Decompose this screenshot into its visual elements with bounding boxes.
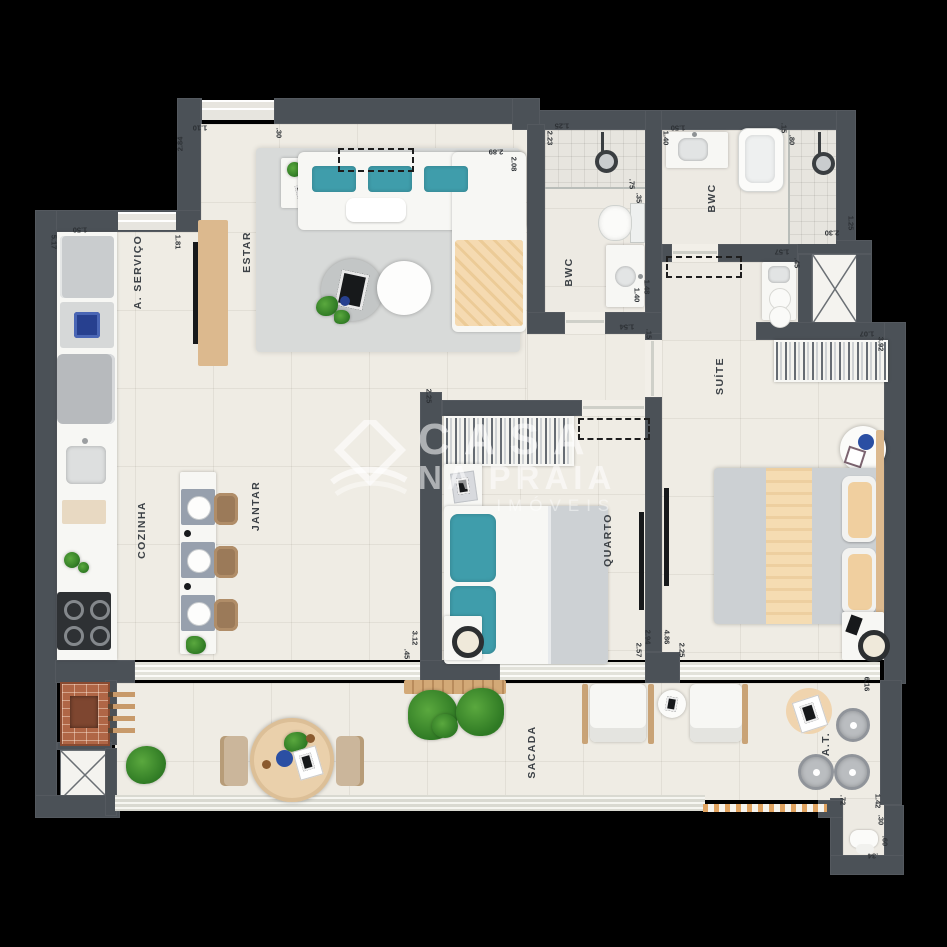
- dimension-label: 2.30: [825, 229, 840, 238]
- dimension-label: 2.25: [678, 643, 687, 658]
- dimension-label: 2.25: [425, 389, 434, 404]
- dimension-label: 2.57: [635, 643, 644, 658]
- dimension-label: 3.12: [411, 631, 420, 646]
- dimension-label: 2.23: [546, 131, 555, 146]
- dimension-label: 1.25: [555, 122, 570, 131]
- dimension-label: .30: [275, 128, 284, 138]
- dimension-label: 1.10: [193, 124, 208, 133]
- dimension-label: 1.40: [662, 131, 671, 146]
- dimension-label: .60: [881, 836, 890, 846]
- dimension-label: 2.89: [489, 148, 504, 157]
- dimension-label: 4.86: [663, 630, 672, 645]
- dimension-label: .80: [788, 135, 797, 145]
- dimension-label: .75: [628, 179, 637, 189]
- dimension-label: 6.16: [863, 677, 872, 692]
- dimension-label: 1.57: [775, 248, 790, 257]
- floor-plan-canvas: A. SERVIÇOESTARCOZINHAJANTARBWCBWCQUARTO…: [0, 0, 947, 947]
- dimension-label: .30: [877, 815, 886, 825]
- dimension-label: 1.54: [620, 323, 635, 332]
- dimension-label: .72: [839, 795, 848, 805]
- dimension-label: 1.50: [671, 124, 686, 133]
- dimension-label: 1.07: [860, 330, 875, 339]
- dimension-label: 2.94: [644, 630, 653, 645]
- dimension-label: 1.50: [73, 226, 88, 235]
- dimension-label: 1.40: [633, 288, 642, 303]
- dimension-label: .15: [645, 329, 654, 339]
- dimension-label: .45: [403, 649, 412, 659]
- dimension-label: 5.17: [50, 235, 59, 250]
- dimension-label: 1.48: [643, 280, 652, 295]
- dimension-label: 2.84: [176, 137, 185, 152]
- dimension-label: 2.08: [510, 157, 519, 172]
- dimension-label: .35: [635, 193, 644, 203]
- dimension-label: 1.42: [874, 794, 883, 809]
- dimension-label: .15: [780, 123, 789, 133]
- dimension-label: 1.25: [847, 216, 856, 231]
- dimension-label: 3.92: [877, 337, 886, 352]
- dimension-label: .45: [793, 258, 802, 268]
- dimension-label: .34: [868, 852, 878, 861]
- dimension-label: 1.81: [174, 235, 183, 250]
- dimension-labels-layer: 2.841.10.301.505.171.812.892.082.231.25.…: [0, 0, 947, 947]
